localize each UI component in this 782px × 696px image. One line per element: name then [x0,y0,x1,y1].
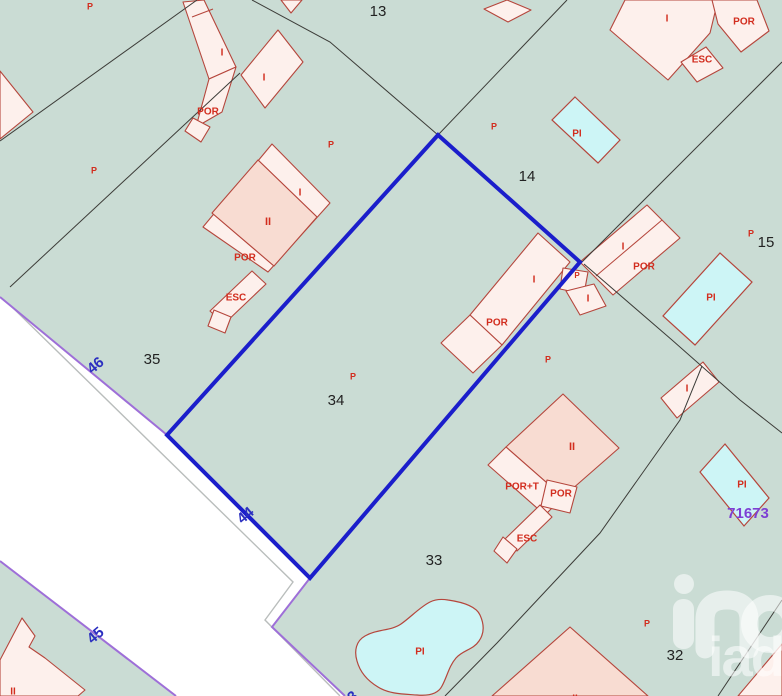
building-label: I [221,48,224,59]
parcel-number: 13 [370,3,387,20]
parcel-number: 14 [519,168,536,185]
building-label: P [328,139,334,149]
building-label: POR [234,253,256,264]
parcel-number: 35 [144,351,161,368]
building-label: I [299,188,302,199]
building-label: PI [706,293,716,304]
building-label: P [574,271,580,280]
building-label: POR [733,17,755,28]
parcel-number: 33 [426,552,443,569]
building-label: I [686,384,689,395]
building-label: I [587,294,590,305]
building-label: II [265,216,271,228]
building-label: I [622,242,625,253]
building-label: PI [737,480,747,491]
building-label: ESC [692,55,713,66]
building-label: II [569,441,575,453]
parcel-number: 15 [758,234,775,251]
building-label: PI [572,129,582,140]
building-label: P [748,228,754,238]
cadastral-map: PPIPORIPIIIPORESCPPPIIPORESCPIPORPIPORIP… [0,0,782,696]
watermark-iad-text: iad [708,625,782,688]
building-label: II [10,687,16,696]
building-label: POR [197,107,219,118]
building-label: POR [486,318,508,329]
building-label: PI [415,647,425,658]
watermark-iad-logo [673,599,694,649]
building-label: P [87,1,93,11]
building-label: P [644,618,650,628]
building-label: ESC [517,534,538,545]
building-label: POR [633,262,655,273]
building-label: P [350,371,356,381]
building-label: I [666,14,669,25]
building-label: POR [550,489,572,500]
building-label: P [91,165,97,175]
reference-number: 71673 [727,505,769,522]
building-label: P [491,121,497,131]
parcel-number: 34 [328,392,345,409]
building-label: I [533,275,536,286]
watermark-iad-logo [674,574,694,594]
building-label: I [263,73,266,84]
building-label: ESC [226,293,247,304]
parcel-number: 32 [667,647,684,664]
building-label: P [545,354,551,364]
map-canvas: PPIPORIPIIIPORESCPPPIIPORESCPIPORPIPORIP… [0,0,782,696]
building-label: POR+T [505,482,539,493]
